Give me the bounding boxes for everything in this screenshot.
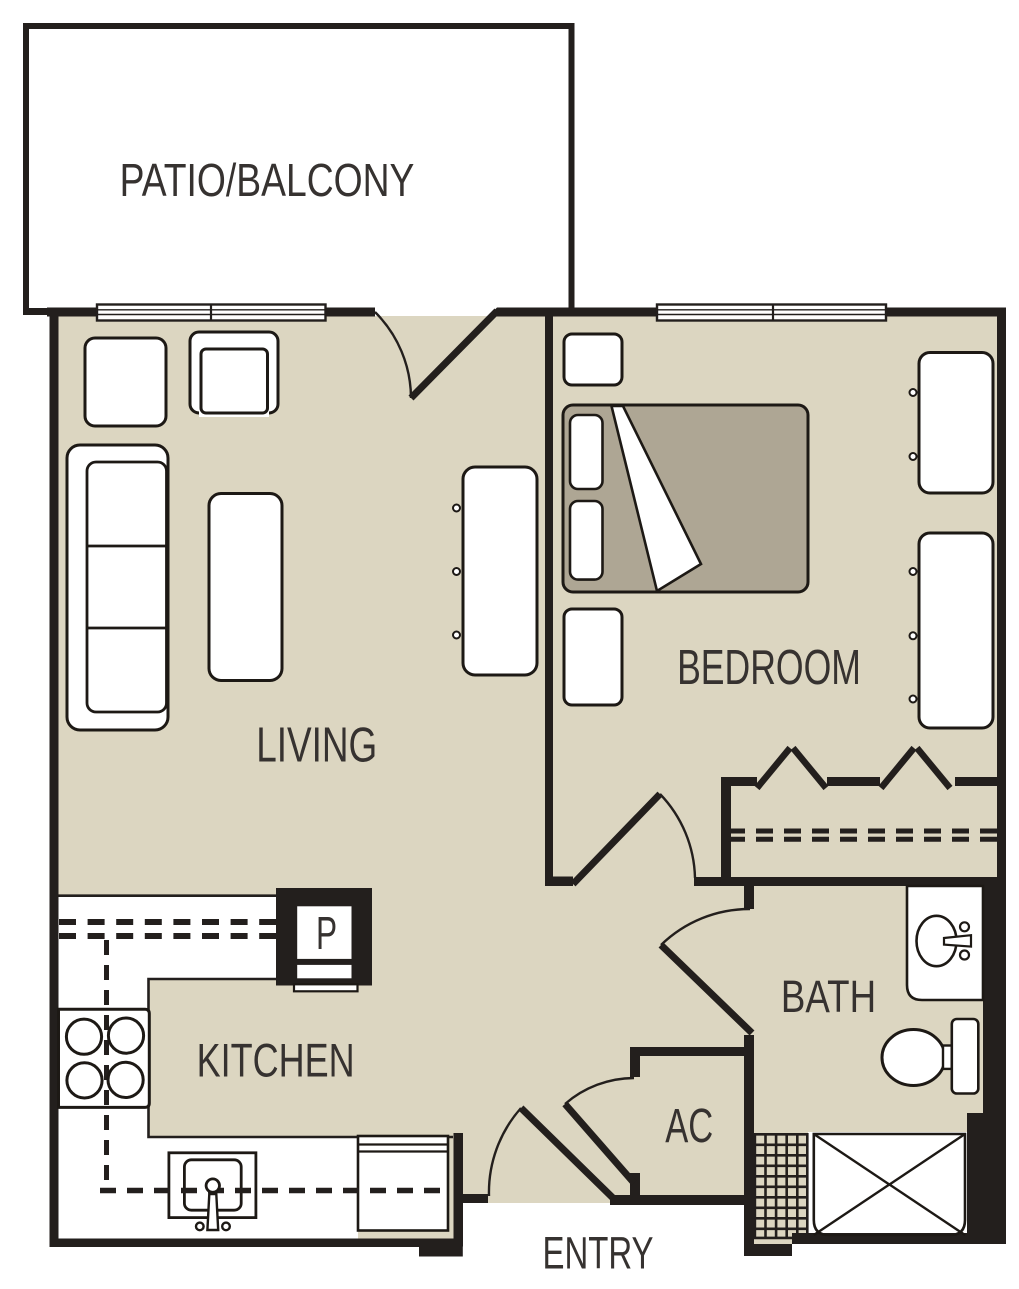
svg-text:LIVING: LIVING [256,719,377,773]
svg-text:AC: AC [665,1099,713,1153]
svg-text:P: P [316,908,337,959]
svg-text:BATH: BATH [781,971,876,1021]
svg-text:ENTRY: ENTRY [542,1228,653,1278]
svg-text:KITCHEN: KITCHEN [197,1034,355,1087]
svg-text:PATIO/BALCONY: PATIO/BALCONY [120,154,415,206]
svg-text:BEDROOM: BEDROOM [677,641,861,696]
